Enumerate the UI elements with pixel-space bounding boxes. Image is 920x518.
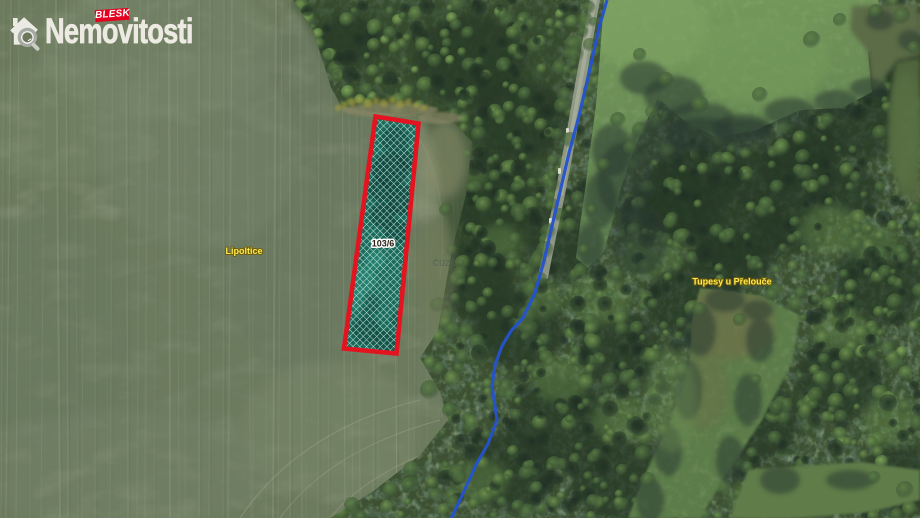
svg-text:ČÚZK: ČÚZK: [433, 259, 456, 268]
svg-text:Tupesy u Přelouče: Tupesy u Přelouče: [692, 277, 771, 287]
svg-text:Lipoltice: Lipoltice: [225, 246, 262, 256]
svg-text:103/6: 103/6: [372, 239, 395, 249]
